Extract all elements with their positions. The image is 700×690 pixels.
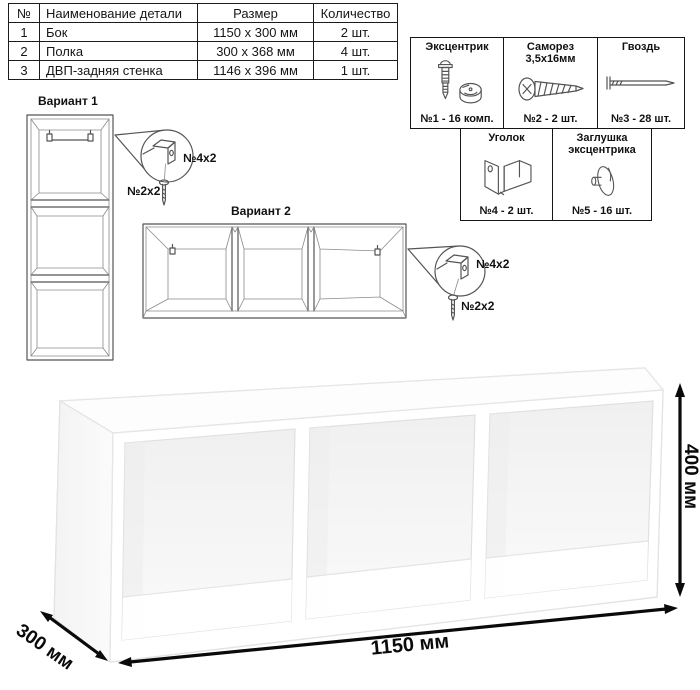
variant2-diagram xyxy=(140,205,520,350)
variant1-screw-label: №2х2 xyxy=(127,184,160,198)
variant1-bracket-label: №4х2 xyxy=(183,151,216,165)
part-name: ДВП-задняя стенка xyxy=(40,61,198,80)
part-number: 1 xyxy=(9,23,40,42)
parts-table: № Наименование детали Размер Количество … xyxy=(8,3,398,80)
variant2-screw-label: №2х2 xyxy=(461,299,494,313)
hardware-count: №5 - 16 шт. xyxy=(572,205,632,217)
hardware-name: Гвоздь xyxy=(622,41,660,53)
nail-icon xyxy=(602,53,680,113)
corner-bracket-icon xyxy=(474,144,540,205)
hardware-cell-nail: Гвоздь №3 - 28 шт. xyxy=(597,37,685,129)
parts-table-header-row: № Наименование детали Размер Количество xyxy=(9,4,398,23)
hardware-cell-eccentric: Эксцентрик №1 - 16 комп. xyxy=(410,37,504,129)
assembly-instruction-sheet: № Наименование детали Размер Количество … xyxy=(0,0,700,690)
part-qty: 2 шт. xyxy=(314,23,398,42)
screw-marker-icon xyxy=(449,295,458,320)
hardware-name: Саморез 3,5х16мм xyxy=(506,41,595,65)
table-row: 2 Полка 300 х 368 мм 4 шт. xyxy=(9,42,398,61)
hardware-count: №2 - 2 шт. xyxy=(524,113,578,125)
part-name: Полка xyxy=(40,42,198,61)
part-size: 300 х 368 мм xyxy=(198,42,314,61)
part-number: 3 xyxy=(9,61,40,80)
variant2-bracket-label: №4х2 xyxy=(476,257,509,271)
hardware-cell-cam-cap: Заглушка эксцентрика №5 - 16 шт. xyxy=(552,128,652,221)
hardware-name: Уголок xyxy=(488,132,524,144)
hardware-name: Эксцентрик xyxy=(425,41,488,53)
hardware-cell-screw: Саморез 3,5х16мм №2 - 2 шт. xyxy=(503,37,598,129)
hardware-count: №3 - 28 шт. xyxy=(611,113,671,125)
parts-header-number: № xyxy=(9,4,40,23)
part-size: 1146 х 396 мм xyxy=(198,61,314,80)
screw-marker-icon xyxy=(160,180,169,205)
parts-header-size: Размер xyxy=(198,4,314,23)
part-number: 2 xyxy=(9,42,40,61)
screw-icon xyxy=(516,65,586,113)
height-dimension-label: 400 мм xyxy=(679,444,700,509)
hardware-name: Заглушка эксцентрика xyxy=(555,132,649,156)
table-row: 1 Бок 1150 х 300 мм 2 шт. xyxy=(9,23,398,42)
part-size: 1150 х 300 мм xyxy=(198,23,314,42)
table-row: 3 ДВП-задняя стенка 1146 х 396 мм 1 шт. xyxy=(9,61,398,80)
hardware-count: №1 - 16 комп. xyxy=(420,113,493,125)
part-qty: 4 шт. xyxy=(314,42,398,61)
part-name: Бок xyxy=(40,23,198,42)
part-qty: 1 шт. xyxy=(314,61,398,80)
cam-lock-icon xyxy=(426,53,488,113)
cam-cap-icon xyxy=(579,156,625,205)
parts-header-qty: Количество xyxy=(314,4,398,23)
parts-header-name: Наименование детали xyxy=(40,4,198,23)
